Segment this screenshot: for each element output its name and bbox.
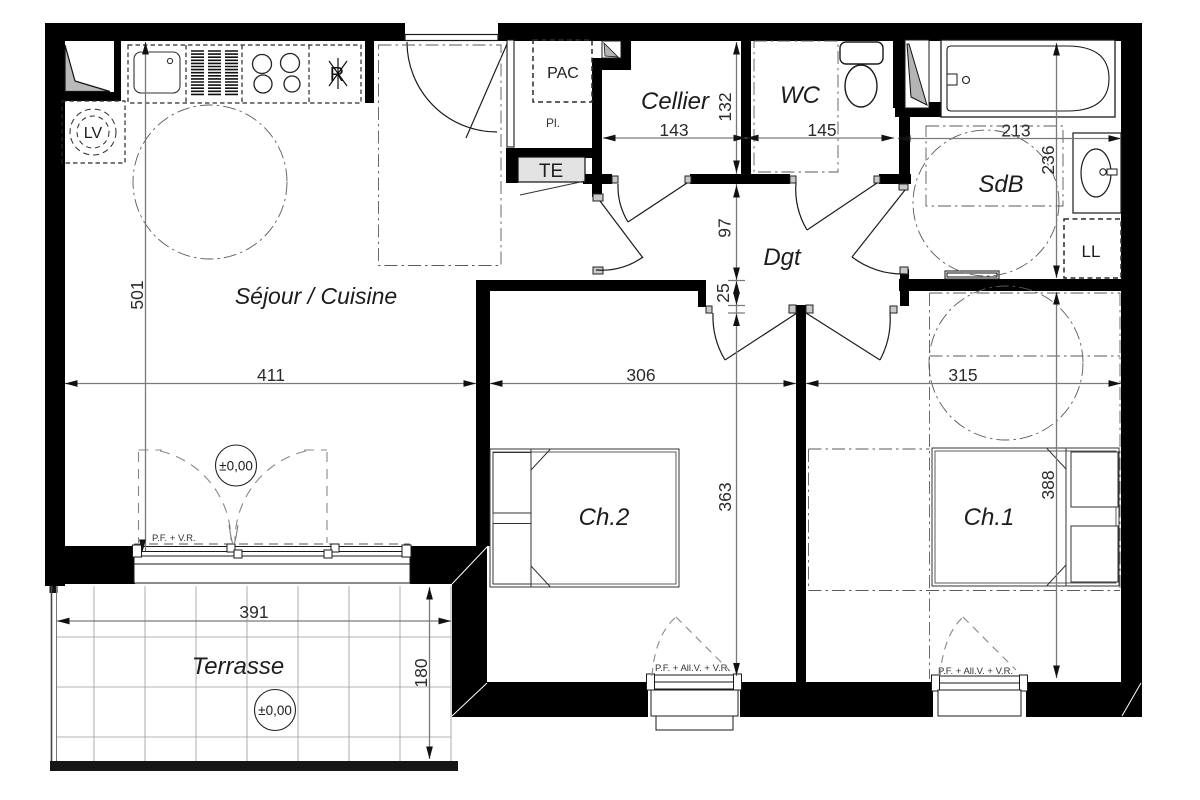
svg-text:132: 132 <box>715 92 735 121</box>
svg-text:391: 391 <box>239 602 268 622</box>
svg-text:SdB: SdB <box>978 171 1023 198</box>
svg-text:P.F. + All.V. + V.R.: P.F. + All.V. + V.R. <box>655 663 730 674</box>
svg-text:TE: TE <box>539 161 563 182</box>
svg-text:P.F. + All.V. + V.R.: P.F. + All.V. + V.R. <box>938 666 1013 677</box>
svg-text:143: 143 <box>659 120 688 140</box>
svg-text:Cellier: Cellier <box>641 88 710 115</box>
svg-text:180: 180 <box>411 658 431 687</box>
svg-text:Dgt: Dgt <box>763 244 802 271</box>
svg-text:501: 501 <box>127 280 147 309</box>
svg-text:LL: LL <box>1082 242 1101 261</box>
svg-text:213: 213 <box>1001 121 1030 141</box>
svg-text:LV: LV <box>84 125 103 142</box>
svg-text:Terrasse: Terrasse <box>192 653 284 680</box>
svg-text:PAC: PAC <box>547 65 579 82</box>
svg-text:P.F. + V.R.: P.F. + V.R. <box>152 533 196 544</box>
svg-text:±0,00: ±0,00 <box>219 459 253 474</box>
svg-text:Pl.: Pl. <box>546 116 560 130</box>
svg-text:236: 236 <box>1038 145 1058 174</box>
svg-text:25: 25 <box>713 283 733 302</box>
svg-text:Ch.2: Ch.2 <box>579 504 630 531</box>
svg-text:97: 97 <box>715 218 735 237</box>
svg-text:±0,00: ±0,00 <box>258 703 292 718</box>
svg-text:Séjour / Cuisine: Séjour / Cuisine <box>235 283 397 309</box>
svg-text:315: 315 <box>948 365 977 385</box>
svg-text:WC: WC <box>780 82 821 109</box>
svg-text:388: 388 <box>1038 470 1058 499</box>
svg-text:306: 306 <box>626 365 655 385</box>
svg-text:363: 363 <box>715 482 735 511</box>
svg-text:Ch.1: Ch.1 <box>964 504 1015 531</box>
svg-text:145: 145 <box>807 120 836 140</box>
svg-text:411: 411 <box>257 365 285 385</box>
